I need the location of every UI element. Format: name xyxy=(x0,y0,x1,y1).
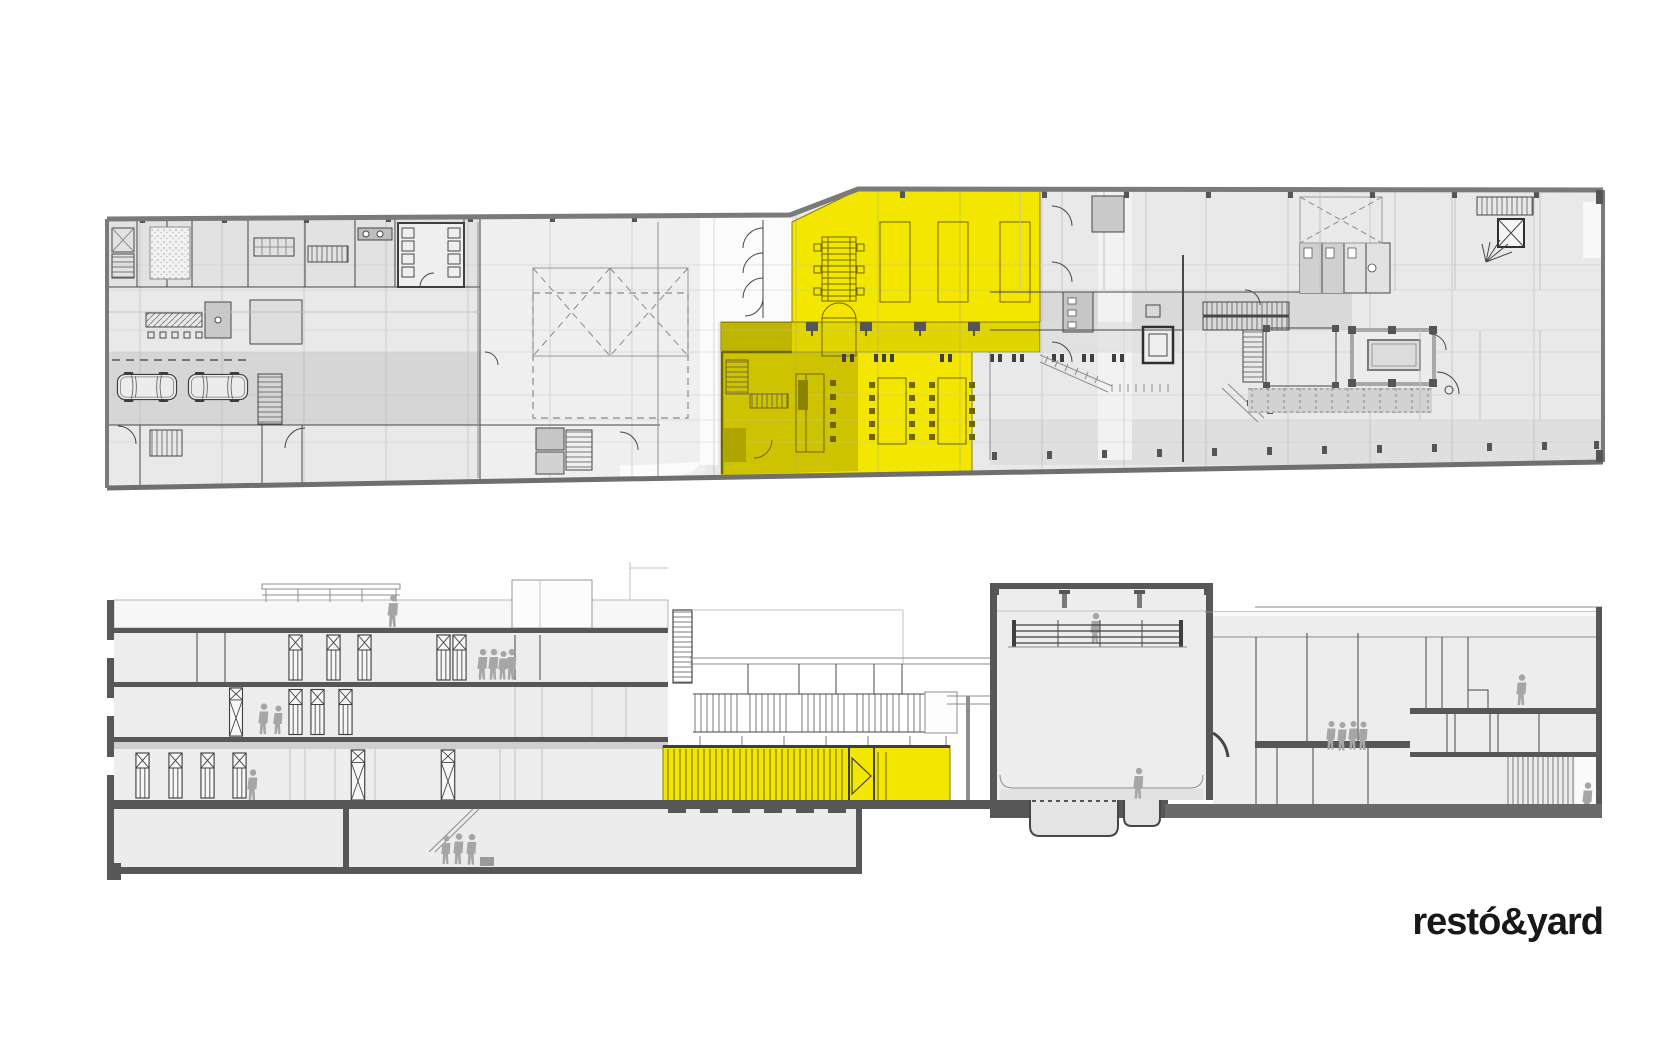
section-roof-pergola xyxy=(262,584,400,602)
plan-stair xyxy=(308,246,348,262)
plan-stair xyxy=(1243,330,1263,382)
section-great-hall xyxy=(990,583,1213,836)
car-icon xyxy=(117,372,176,402)
section-roof-box xyxy=(512,580,592,628)
logo-wordmark: restó&yard xyxy=(1412,901,1603,944)
plan-wc-cluster xyxy=(1300,243,1390,293)
section-sunken-pit xyxy=(1030,800,1118,836)
car-icon xyxy=(188,372,247,402)
plan-reception-desk xyxy=(146,313,202,327)
section-highlight-resto-level xyxy=(663,745,950,802)
longitudinal-section xyxy=(107,562,1602,880)
plan-main-stair xyxy=(1203,302,1289,330)
floor-plan xyxy=(107,180,1603,500)
plan-pool-room xyxy=(1348,326,1437,387)
section-right-wing xyxy=(1165,607,1602,818)
architectural-sheet: restó&yard xyxy=(0,0,1680,1050)
plan-courtyard-path xyxy=(700,213,718,465)
section-window-mullions xyxy=(693,694,948,745)
plan-stair xyxy=(258,374,282,424)
plan-mosaic-room xyxy=(150,227,190,279)
section-louver-shaft xyxy=(673,610,692,683)
plan-wc-block xyxy=(398,223,464,287)
